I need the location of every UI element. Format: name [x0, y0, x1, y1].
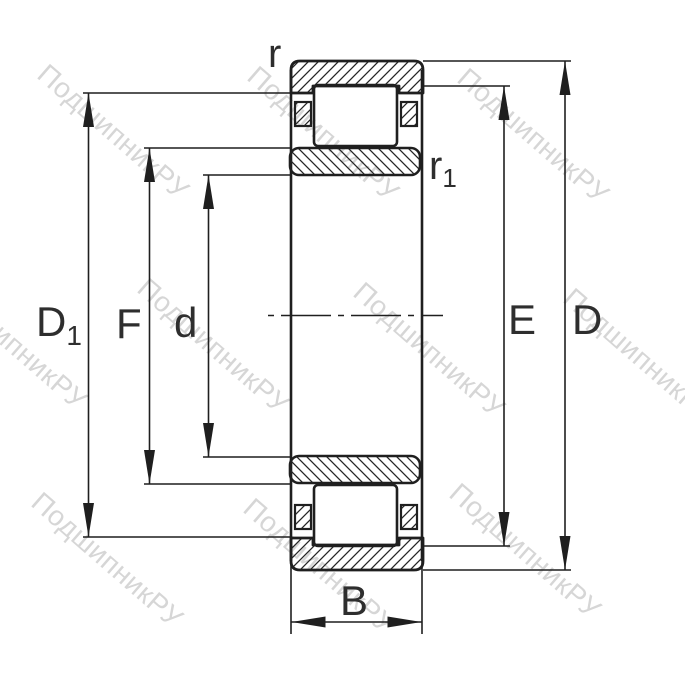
dimension-label-r1-main: r: [429, 144, 442, 188]
d-arrow-up: [203, 175, 214, 209]
E-arrow-down: [499, 512, 510, 546]
cage-bar-top-right: [401, 102, 417, 126]
inner-ring-bottom-section: [290, 456, 420, 483]
cage-bar-top-left: [295, 102, 311, 126]
dimension-label-r1: r1: [429, 146, 457, 186]
B-arrow-right: [388, 617, 422, 628]
F-arrow-down: [144, 450, 155, 484]
outer-ring-top-section: [291, 61, 423, 93]
dimension-label-d: d: [174, 302, 197, 344]
d-arrow-down: [203, 423, 214, 457]
dimension-label-B: B: [340, 580, 368, 622]
outer-ring-bottom-section: [291, 538, 423, 570]
cage-bar-bottom-right: [401, 505, 417, 529]
inner-ring-top-section: [290, 148, 420, 175]
cage-bar-bottom-left: [295, 505, 311, 529]
B-arrow-left: [292, 617, 326, 628]
bearing-drawing-page: ПодшипникРУ ПодшипникРУ ПодшипникРУ Подш…: [0, 0, 685, 689]
F-arrow-up: [144, 148, 155, 182]
D-arrow-down: [560, 536, 571, 570]
E-arrow-up: [499, 86, 510, 120]
dimension-label-D1-sub: 1: [66, 320, 82, 351]
dimension-label-E: E: [508, 299, 536, 341]
D-arrow-up: [560, 61, 571, 95]
roller-top: [314, 85, 397, 146]
dimension-label-D1-main: D: [36, 298, 66, 345]
D1-arrow-down: [83, 503, 94, 537]
dimension-label-D: D: [572, 299, 602, 341]
dimension-label-r1-sub: 1: [442, 163, 456, 193]
dimension-label-D1: D1: [36, 301, 82, 343]
roller-bottom: [314, 485, 397, 546]
dimension-label-F: F: [116, 303, 142, 345]
dimension-label-r: r: [268, 34, 281, 74]
D1-arrow-up: [83, 93, 94, 127]
